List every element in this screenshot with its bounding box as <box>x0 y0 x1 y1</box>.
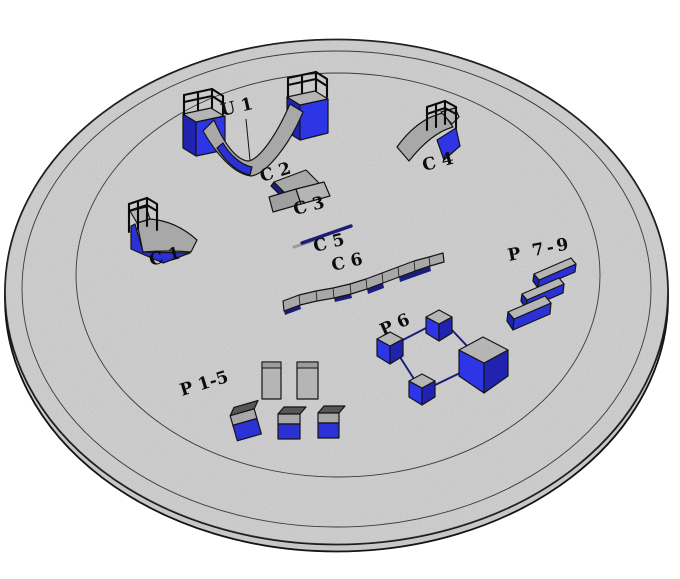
p4-box-upper <box>278 414 300 424</box>
p2-panel-top-band <box>297 362 318 368</box>
p1-panel-top-band <box>262 362 281 368</box>
p2-panel <box>297 362 318 399</box>
u1-right-tower-front-face <box>300 99 328 140</box>
p1-panel <box>262 362 281 399</box>
p5-box-lower <box>318 423 339 438</box>
p5-box-upper <box>318 413 339 423</box>
p4-box-lower <box>278 424 300 439</box>
skatepark-3d-view: U 1 C 1 C 2 C 3 C 4 C 5 C 6 P 1-5 P 6 P … <box>0 0 680 579</box>
skatepark-render-canvas: U 1 C 1 C 2 C 3 C 4 C 5 C 6 P 1-5 P 6 P … <box>0 0 680 579</box>
